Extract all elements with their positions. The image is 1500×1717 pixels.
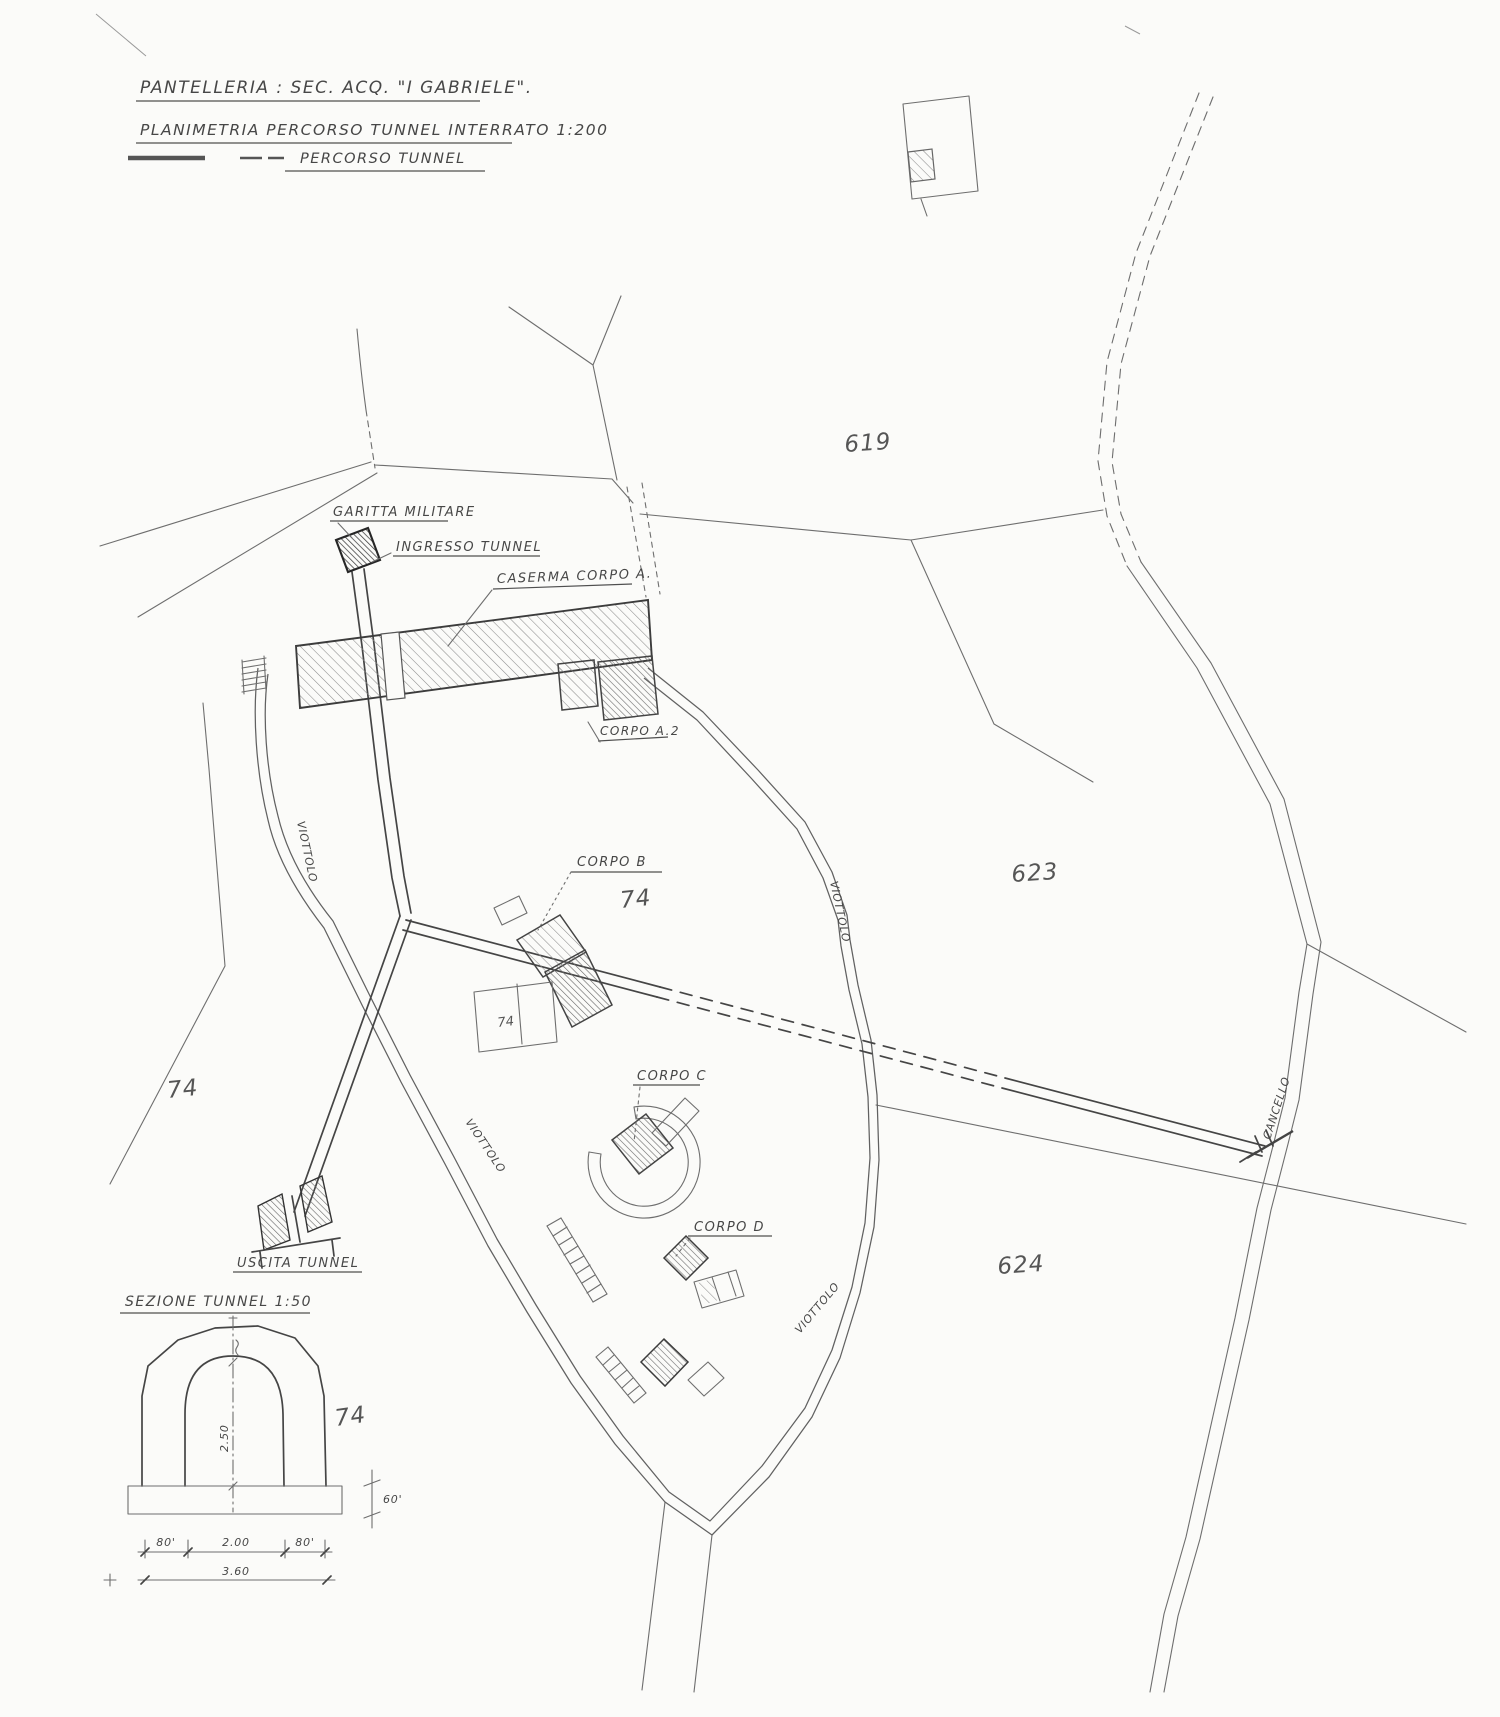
section-outer-profile — [142, 1326, 326, 1486]
tunnel-diagonal-solid-east — [1002, 1078, 1265, 1156]
corpo-b-annex — [494, 896, 527, 925]
fence-inner — [265, 674, 870, 1521]
parcel-boundaries — [100, 296, 1466, 1692]
boundary-line — [1307, 944, 1466, 1032]
section-dim-center: 2.00 — [222, 1536, 250, 1549]
corpo-d-block-4 — [688, 1362, 724, 1396]
plan-labels: GARITTA MILITARE INGRESSO TUNNEL CASERMA… — [237, 505, 1293, 1336]
corpo-d-block-1 — [664, 1236, 708, 1280]
road-edge-dashed — [1112, 97, 1213, 562]
tunnel-corridor-north — [352, 569, 411, 916]
section-dim-right: 80' — [295, 1536, 314, 1549]
corpo-c-label: CORPO C — [637, 1069, 707, 1084]
boundary-line — [100, 462, 371, 546]
scan-stray-marks — [96, 14, 1140, 56]
section-drawing: SEZIONE TUNNEL 1:50 2.50 60' 80' 2.00 80… — [104, 1294, 402, 1586]
section-inner-arch — [185, 1356, 284, 1486]
drawing-title-line1: PANTELLERIA : SEC. ACQ. "I GABRIELE". — [140, 78, 533, 98]
corpo-d-block-2-hatch — [698, 1279, 718, 1305]
parcel-74-west: 74 — [166, 1075, 200, 1104]
road-edge — [1127, 566, 1307, 1692]
corpo-d-block-3 — [641, 1339, 688, 1386]
boundary-line — [375, 465, 633, 503]
corpo-b-label: CORPO B — [577, 855, 647, 870]
viottolo-label-east: VIOTTOLO — [827, 880, 853, 944]
corpo-a2-annex-2 — [598, 656, 658, 720]
road-edge-dashed — [1098, 93, 1199, 566]
viottolo-label-southwest: VIOTTOLO — [463, 1116, 509, 1175]
caserma-corpo-a-building — [296, 600, 658, 720]
north-east-building — [903, 96, 978, 216]
stairs-west — [242, 656, 266, 694]
boundary-line — [509, 296, 621, 480]
boundary-line — [357, 329, 366, 410]
corpo-a2-annex-1 — [558, 660, 598, 710]
parcel-74-corpo-b: 74 — [619, 885, 653, 914]
drawing-title-line2: PLANIMETRIA PERCORSO TUNNEL INTERRATO 1:… — [140, 121, 609, 139]
corpo-b-building — [494, 896, 612, 1027]
corpo-c-building — [588, 1098, 700, 1218]
viottolo-label-southeast: VIOTTOLO — [792, 1280, 842, 1336]
garitta-militare-label: GARITTA MILITARE — [333, 505, 476, 520]
title-block: PANTELLERIA : SEC. ACQ. "I GABRIELE". PL… — [128, 78, 609, 171]
section-small-mark — [236, 1340, 239, 1355]
corpo-d-label: CORPO D — [694, 1220, 765, 1235]
drawing-sheet: PANTELLERIA : SEC. ACQ. "I GABRIELE". PL… — [0, 0, 1500, 1717]
boundary-line — [640, 510, 1103, 540]
boundary-line — [911, 540, 1093, 782]
section-dim-left: 80' — [156, 1536, 175, 1549]
court-square-divider — [517, 984, 522, 1044]
section-dim-total: 3.60 — [222, 1565, 250, 1578]
tunnel-diagonal-dashed — [657, 987, 1005, 1088]
uscita-tunnel-label: USCITA TUNNEL — [237, 1256, 359, 1271]
ingresso-tunnel-label: INGRESSO TUNNEL — [396, 540, 542, 555]
court-74-mark: 74 — [497, 1014, 515, 1031]
section-height-dim: 2.50 — [218, 1424, 231, 1452]
stairs — [242, 656, 646, 1403]
parcel-619: 619 — [844, 429, 893, 458]
parcel-624: 624 — [997, 1251, 1046, 1280]
stairs-b-steps — [596, 1347, 646, 1403]
court-square-outline — [474, 982, 557, 1052]
plan-svg: PANTELLERIA : SEC. ACQ. "I GABRIELE". PL… — [0, 0, 1500, 1717]
road — [1098, 93, 1321, 1692]
stairs-a-steps — [547, 1218, 607, 1302]
uscita-wing-left — [258, 1194, 290, 1250]
caserma-block — [296, 600, 652, 708]
section-base-height-dim: 60' — [383, 1493, 402, 1506]
corpo-c-ramp — [652, 1098, 699, 1146]
uscita-tunnel-structure — [252, 1176, 340, 1268]
parcel-74-section: 74 — [333, 1402, 368, 1432]
section-title: SEZIONE TUNNEL 1:50 — [125, 1294, 312, 1310]
boundary-line — [642, 1502, 712, 1692]
section-dim-line-2 — [104, 1574, 335, 1586]
section-base-slab — [128, 1486, 342, 1514]
boundary-line — [110, 703, 225, 1184]
court-square — [474, 982, 557, 1052]
garitta-militare-box — [336, 528, 380, 572]
section-base-height-dim-line — [364, 1470, 380, 1528]
viottolo-label-west: VIOTTOLO — [294, 820, 320, 884]
legend-label: PERCORSO TUNNEL — [300, 151, 466, 167]
building-outline — [903, 96, 978, 199]
building-annex — [908, 149, 935, 182]
building-tick — [921, 199, 927, 216]
parcel-623: 623 — [1011, 859, 1060, 888]
boundary-line — [876, 1105, 1466, 1224]
uscita-wing-right — [300, 1176, 332, 1232]
corpo-a2-label: CORPO A.2 — [600, 724, 680, 738]
corpo-d-buildings — [641, 1236, 744, 1396]
boundary-line-dashed — [366, 410, 375, 468]
corpo-a2-leader — [588, 722, 600, 742]
